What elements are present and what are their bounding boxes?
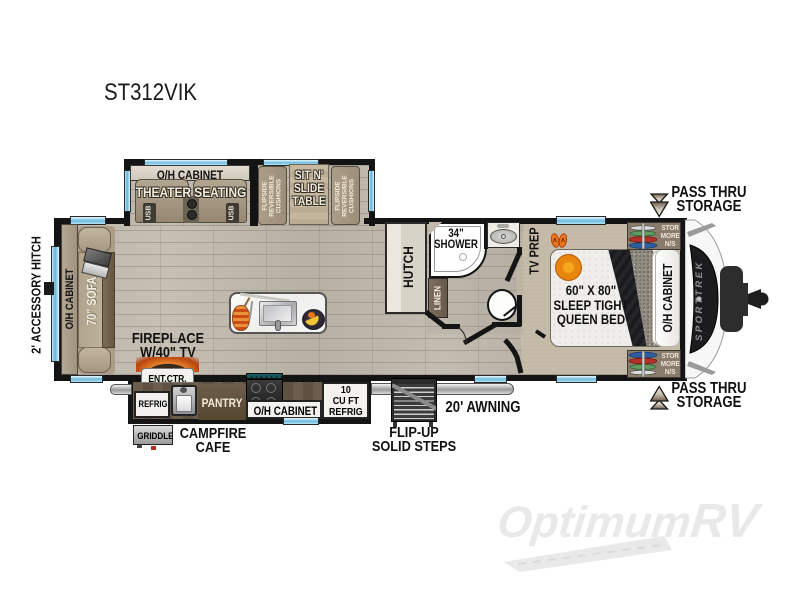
svg-text:SPORTTREK: SPORTTREK [694, 260, 705, 341]
svg-text:OptimumRV: OptimumRV [495, 494, 764, 548]
